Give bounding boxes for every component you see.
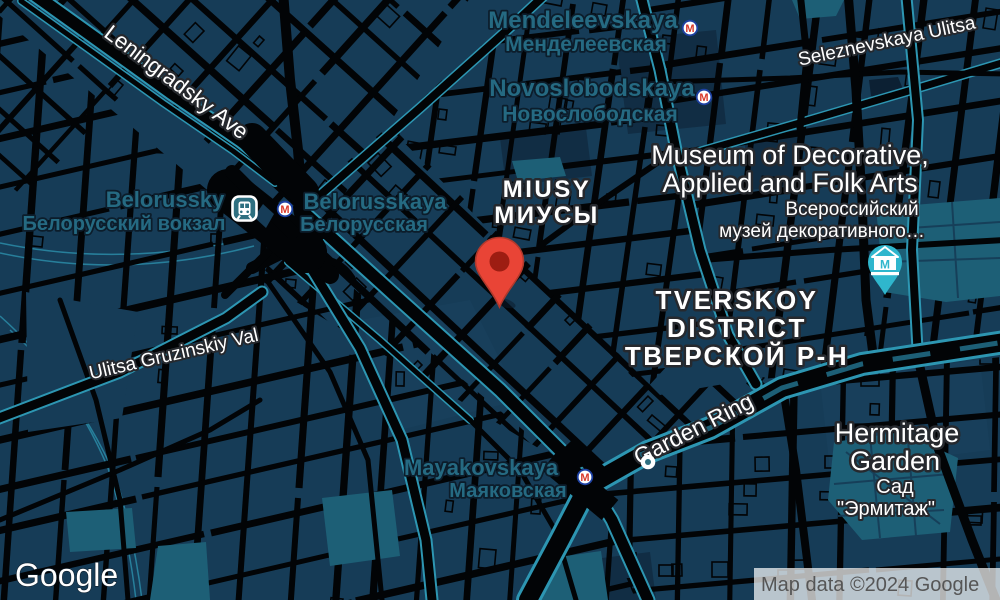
svg-text:"Эрмитаж": "Эрмитаж" [837, 498, 935, 520]
svg-text:Белорусская: Белорусская [300, 214, 428, 236]
svg-text:Менделеевская: Менделеевская [505, 33, 667, 56]
svg-text:TVERSKOY: TVERSKOY [655, 285, 818, 315]
svg-text:Applied and Folk Arts: Applied and Folk Arts [662, 168, 917, 198]
svg-text:Museum of Decorative,: Museum of Decorative, [651, 140, 929, 170]
svg-text:Hermitage: Hermitage [835, 418, 960, 448]
svg-text:музей декоративного…: музей декоративного… [719, 221, 925, 242]
svg-text:Mendeleevskaya: Mendeleevskaya [488, 7, 678, 34]
svg-text:DISTRICT: DISTRICT [667, 313, 807, 343]
svg-text:Сад: Сад [876, 476, 914, 498]
svg-text:M: M [880, 258, 890, 272]
svg-text:Garden: Garden [850, 446, 940, 476]
svg-text:Novoslobodskaya: Novoslobodskaya [489, 75, 695, 102]
svg-text:Белорусский вокзал: Белорусский вокзал [23, 213, 226, 235]
svg-text:Map data ©2024 Google: Map data ©2024 Google [761, 574, 979, 596]
svg-text:M: M [699, 92, 708, 104]
svg-text:МИУСЫ: МИУСЫ [494, 202, 600, 229]
svg-text:MIUSY: MIUSY [503, 176, 592, 203]
svg-text:Всероссийский: Всероссийский [785, 199, 918, 220]
svg-text:Mayakovskaya: Mayakovskaya [404, 455, 559, 480]
svg-text:Belorusskaya: Belorusskaya [303, 189, 447, 214]
svg-text:ТВЕРСКОЙ Р-Н: ТВЕРСКОЙ Р-Н [625, 341, 849, 371]
svg-text:Новослободская: Новослободская [502, 103, 677, 126]
svg-text:M: M [280, 204, 289, 216]
svg-text:Google: Google [15, 557, 118, 593]
svg-text:M: M [685, 23, 694, 35]
svg-text:Belorussky: Belorussky [106, 187, 225, 212]
svg-text:M: M [580, 472, 589, 484]
svg-text:Маяковская: Маяковская [449, 480, 566, 502]
